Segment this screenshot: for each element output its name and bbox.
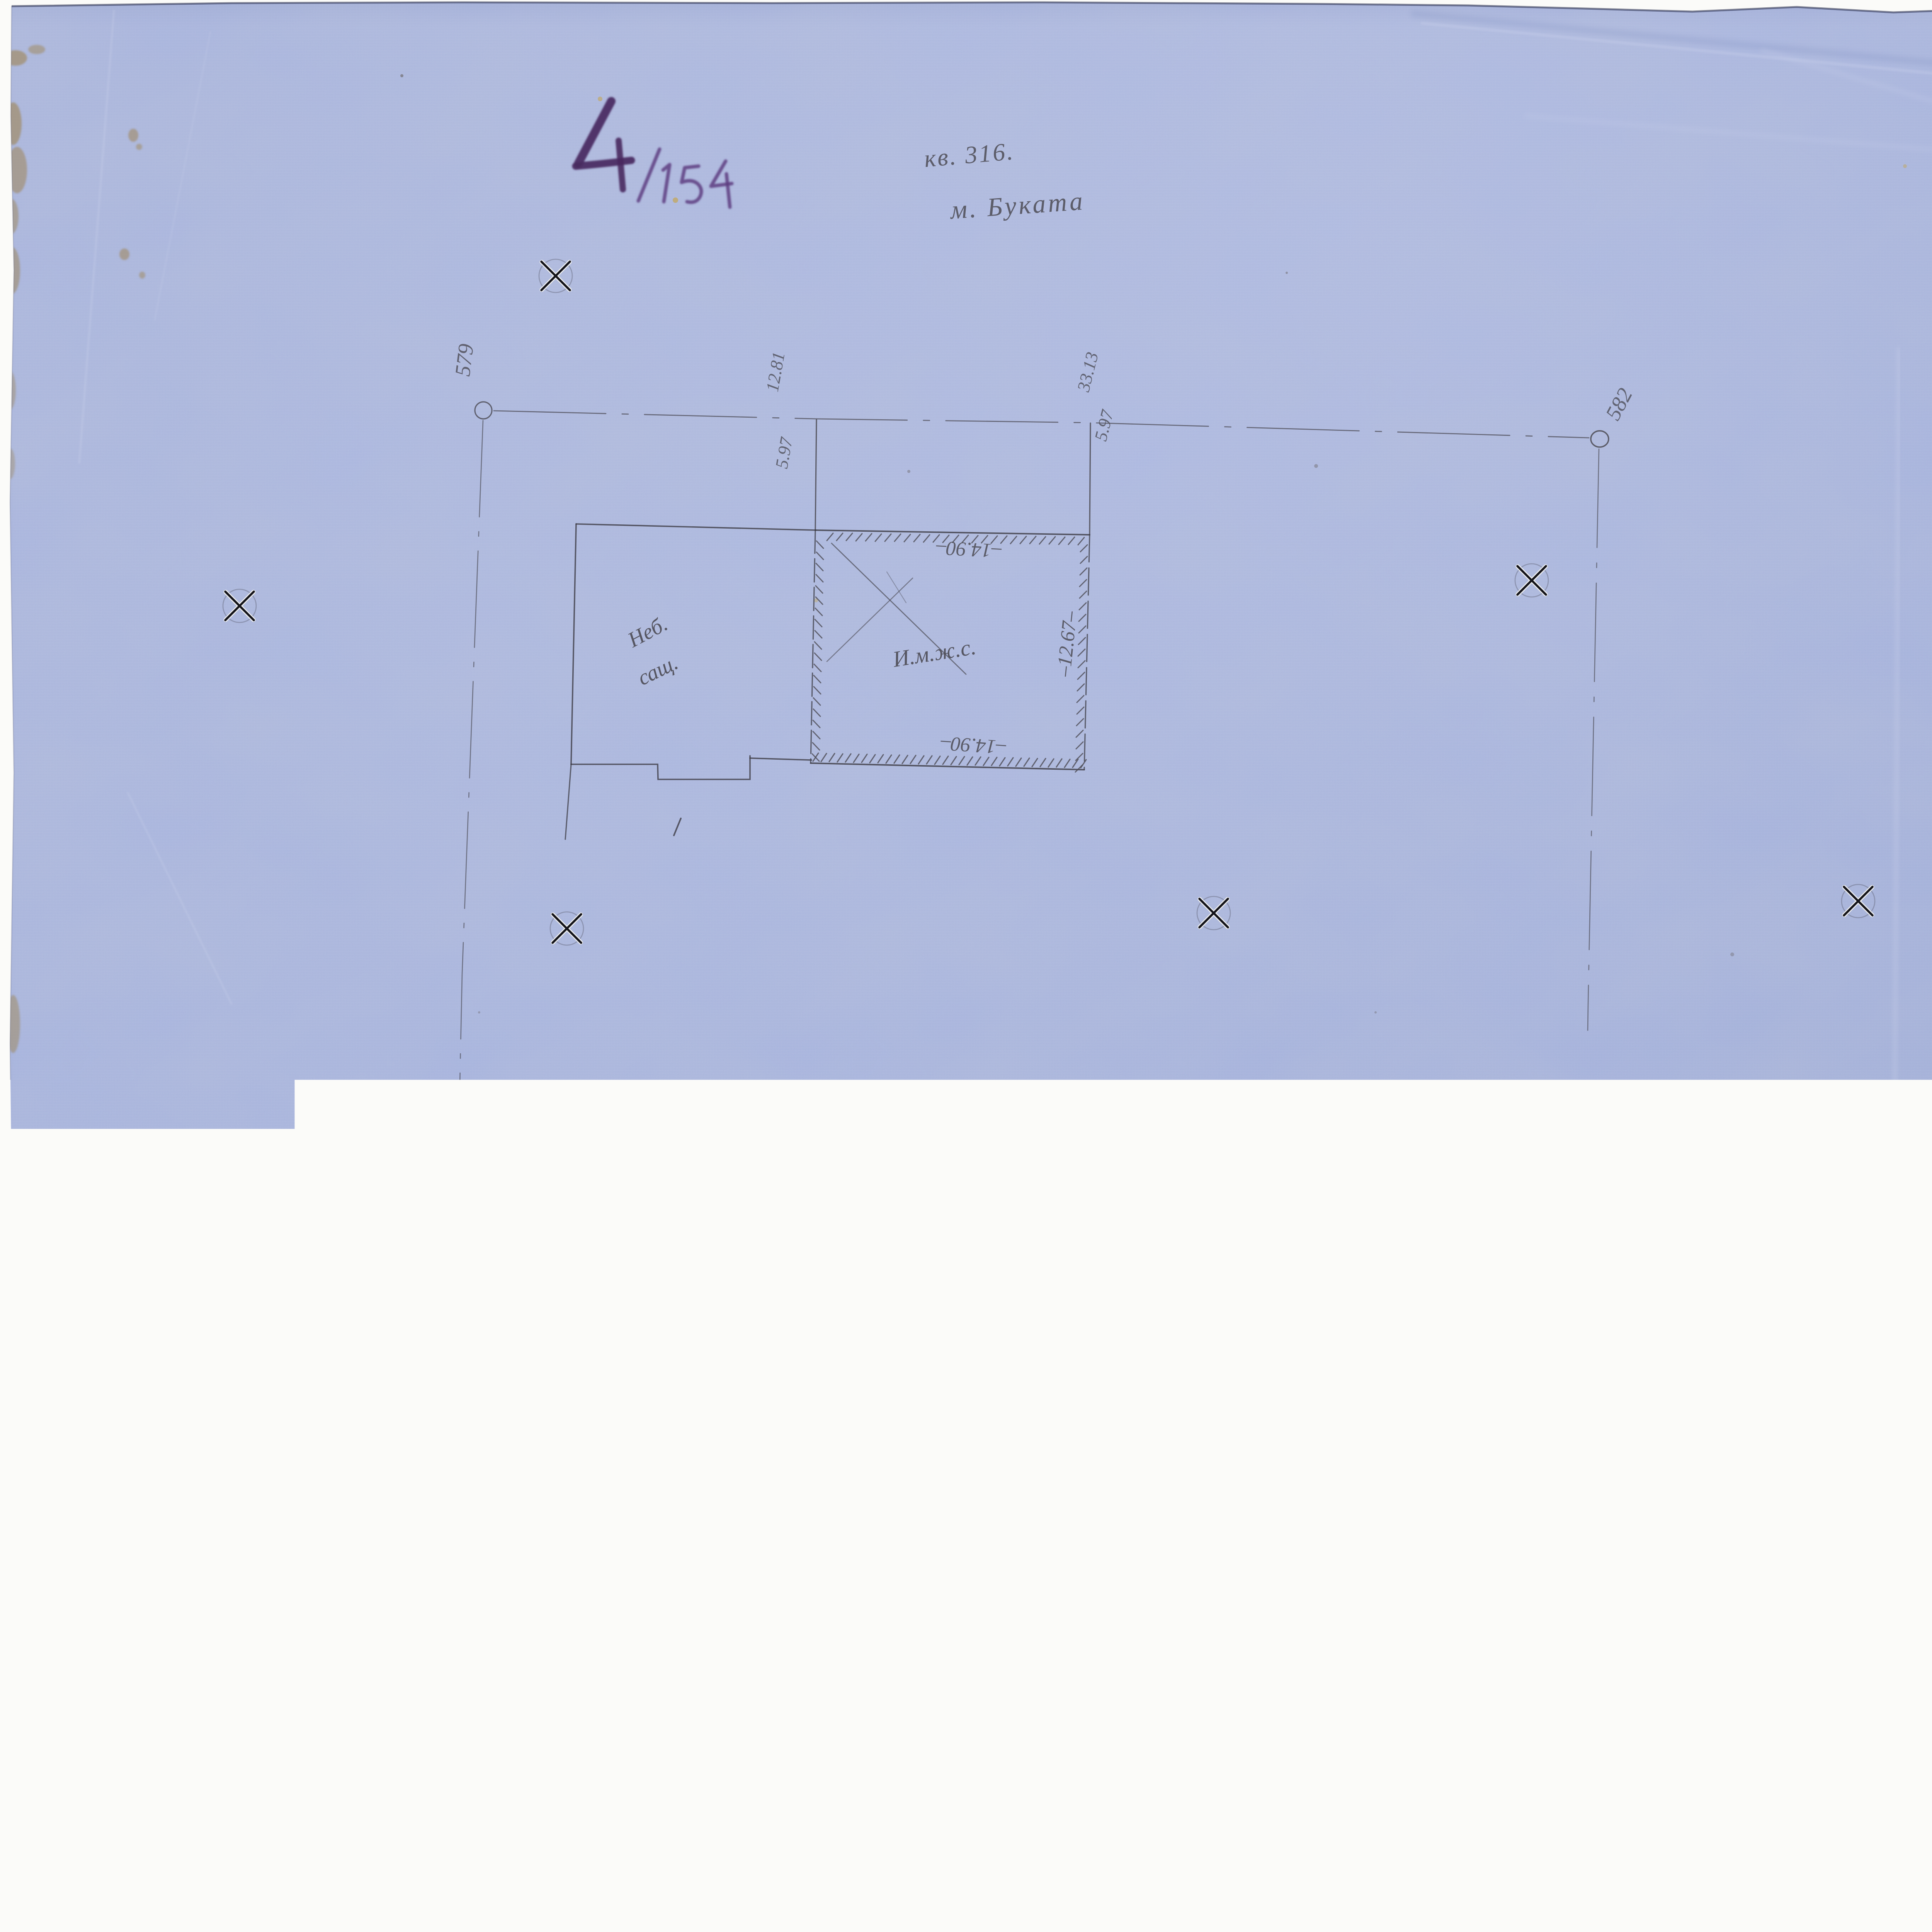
svg-text:579: 579 [451, 342, 478, 378]
svg-text:–14.90–: –14.90– [935, 537, 1002, 562]
svg-text:–14.90–: –14.90– [940, 732, 1007, 759]
